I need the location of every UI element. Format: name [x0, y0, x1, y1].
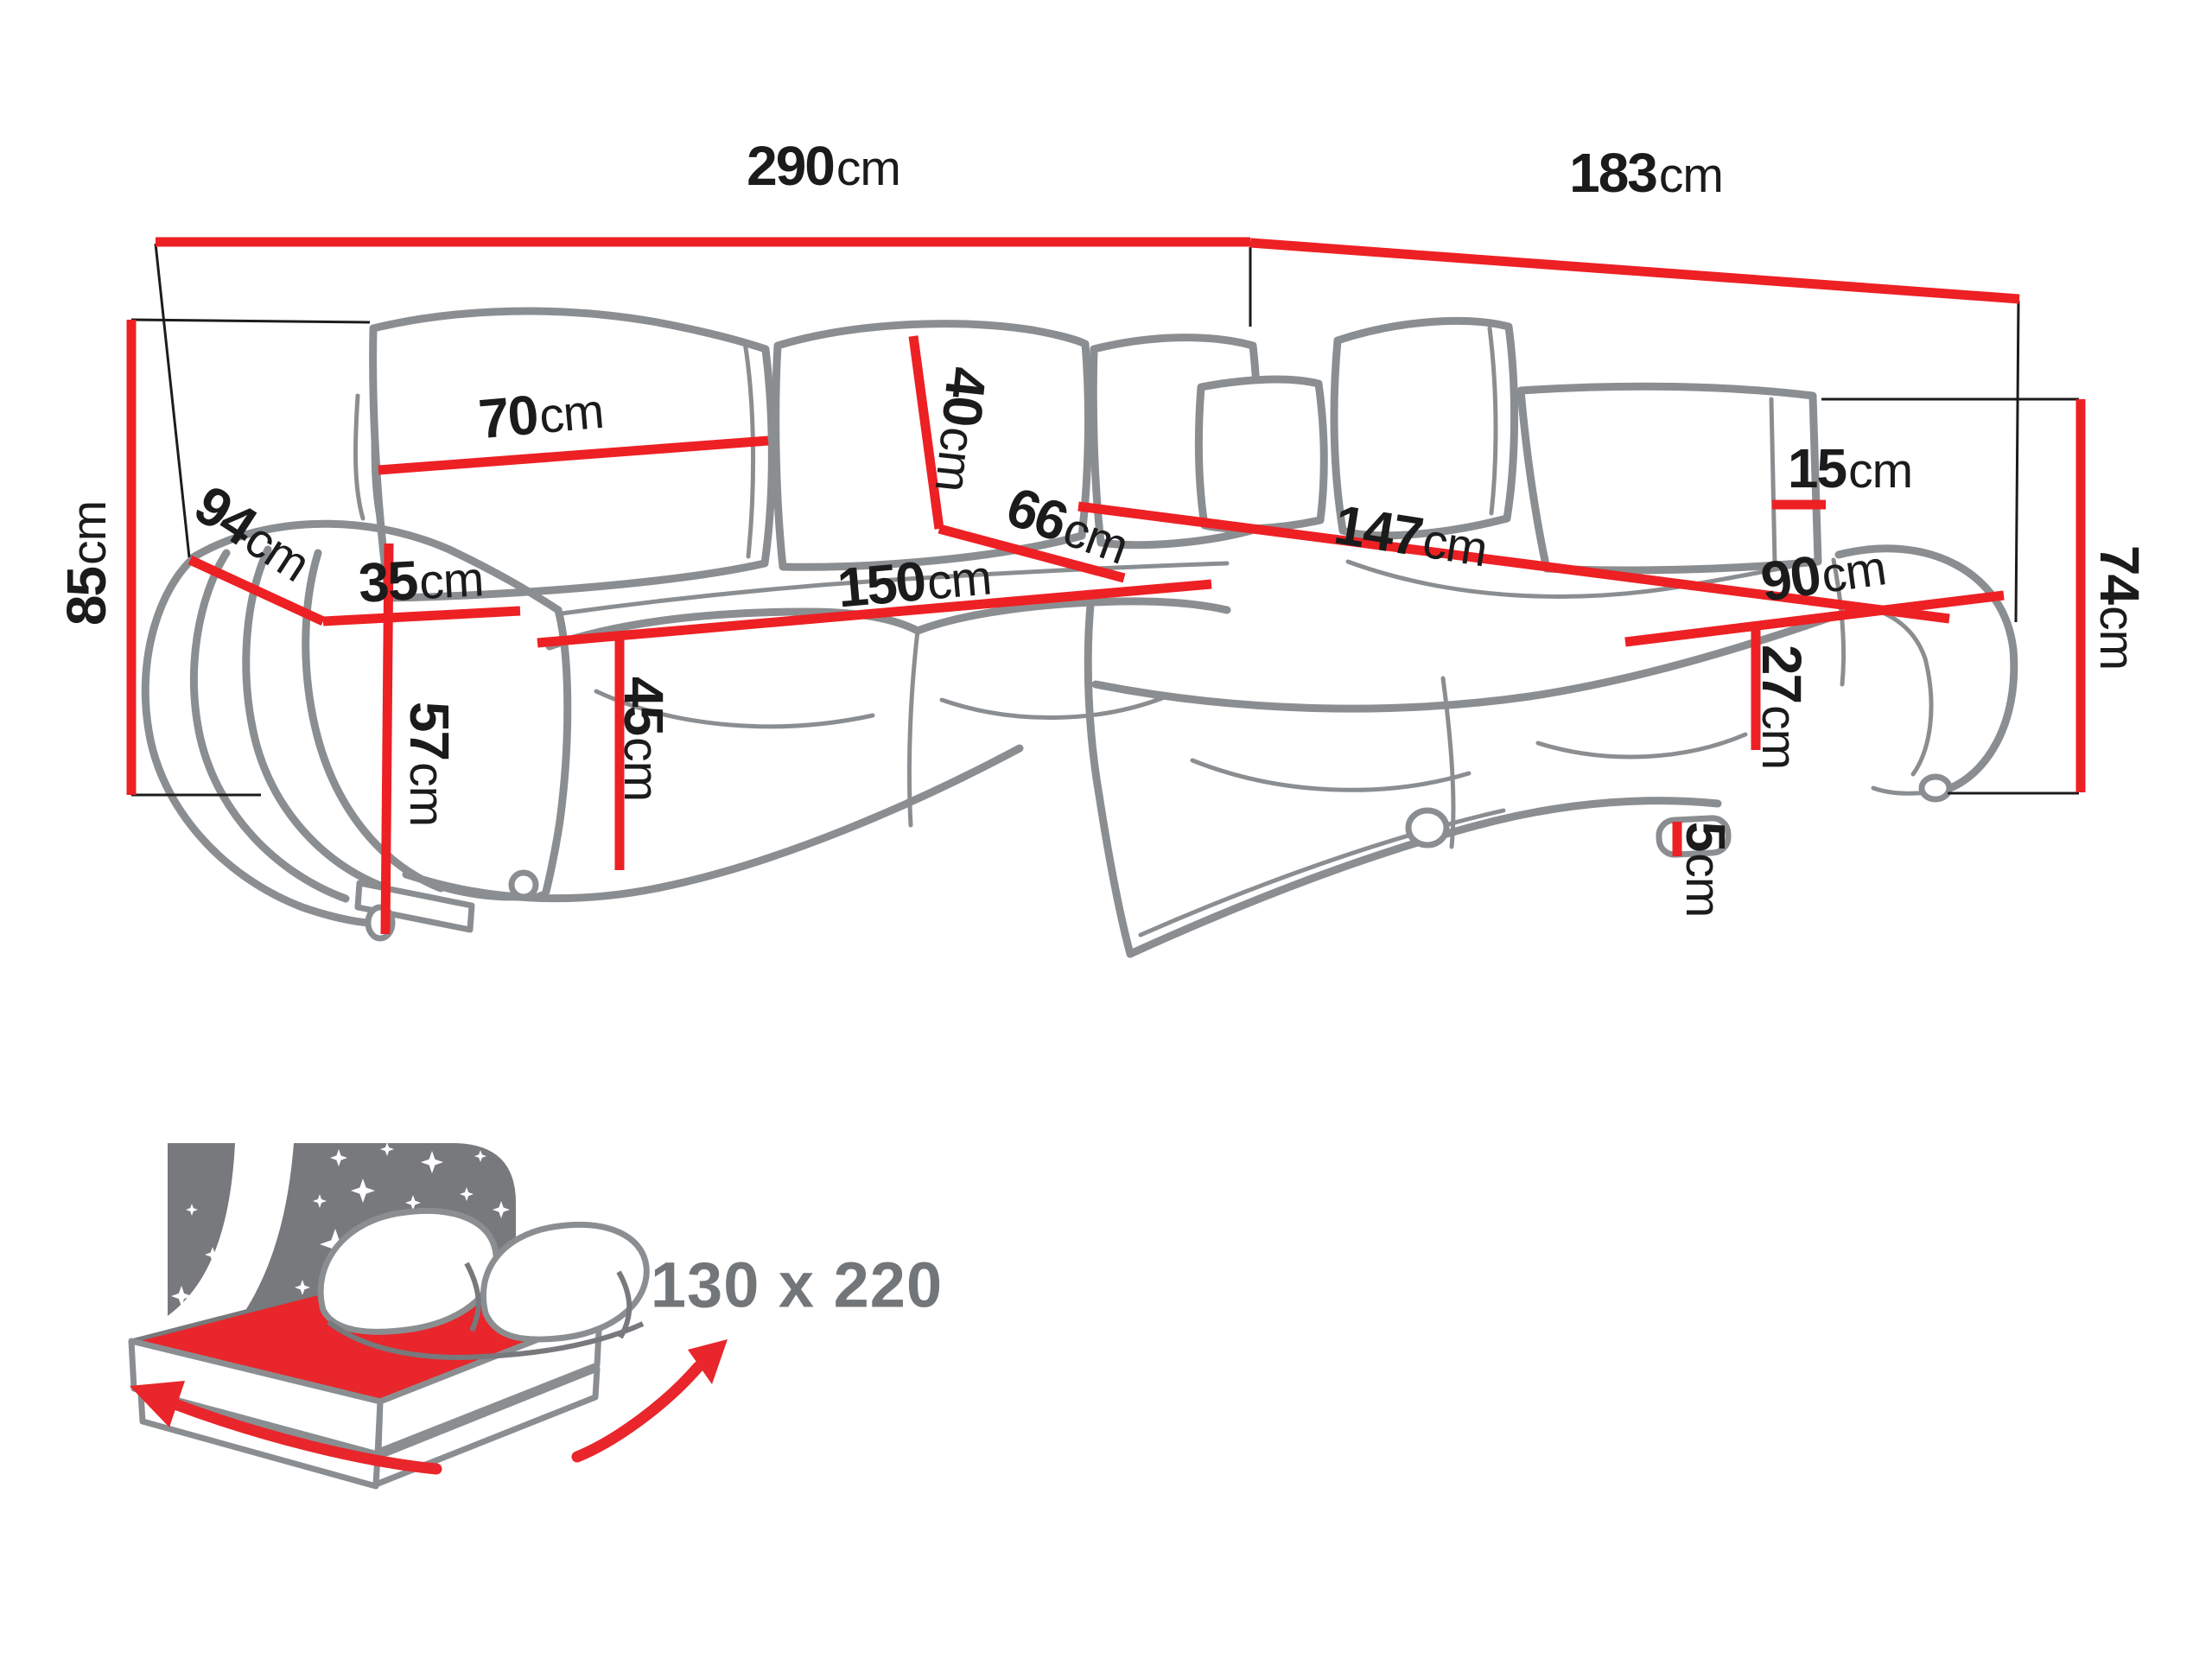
- sofa-leg: [1408, 810, 1446, 845]
- dimension-seat-height: 45cm: [616, 677, 671, 801]
- dimension-armrest-width: 35cm: [357, 549, 484, 610]
- corner-pillow: [1198, 379, 1324, 529]
- dimension-armrest-height: 57cm: [402, 702, 457, 826]
- dimension-side-width: 183cm: [1569, 145, 1723, 200]
- dimension-total-width: 290cm: [747, 138, 900, 194]
- dimension-chaise-side-height: 27cm: [1754, 645, 1809, 769]
- diagram-stage: 290cm 183cm 85cm 94cm 35cm 70cm 57cm 150…: [0, 0, 2212, 1659]
- dimension-total-height: 85cm: [59, 501, 114, 626]
- sofa-leg: [512, 873, 536, 897]
- sleeping-function-icon: [130, 1142, 728, 1486]
- line-side-width: [1250, 243, 2019, 299]
- dimension-seat-length: 150cm: [836, 547, 994, 615]
- sofa-leg: [1922, 777, 1949, 799]
- sofa-dimension-drawing: [0, 0, 2212, 1659]
- dimension-chaise-height: 74cm: [2092, 545, 2147, 670]
- dimension-back-panel-width: 15cm: [1788, 441, 1912, 496]
- sleeping-area-size-label: 130 x 220: [651, 1249, 943, 1322]
- dimension-leg-height: 5cm: [1678, 822, 1733, 918]
- dimension-back-cushion-width: 70cm: [476, 381, 605, 447]
- line-armrest-width: [323, 611, 520, 621]
